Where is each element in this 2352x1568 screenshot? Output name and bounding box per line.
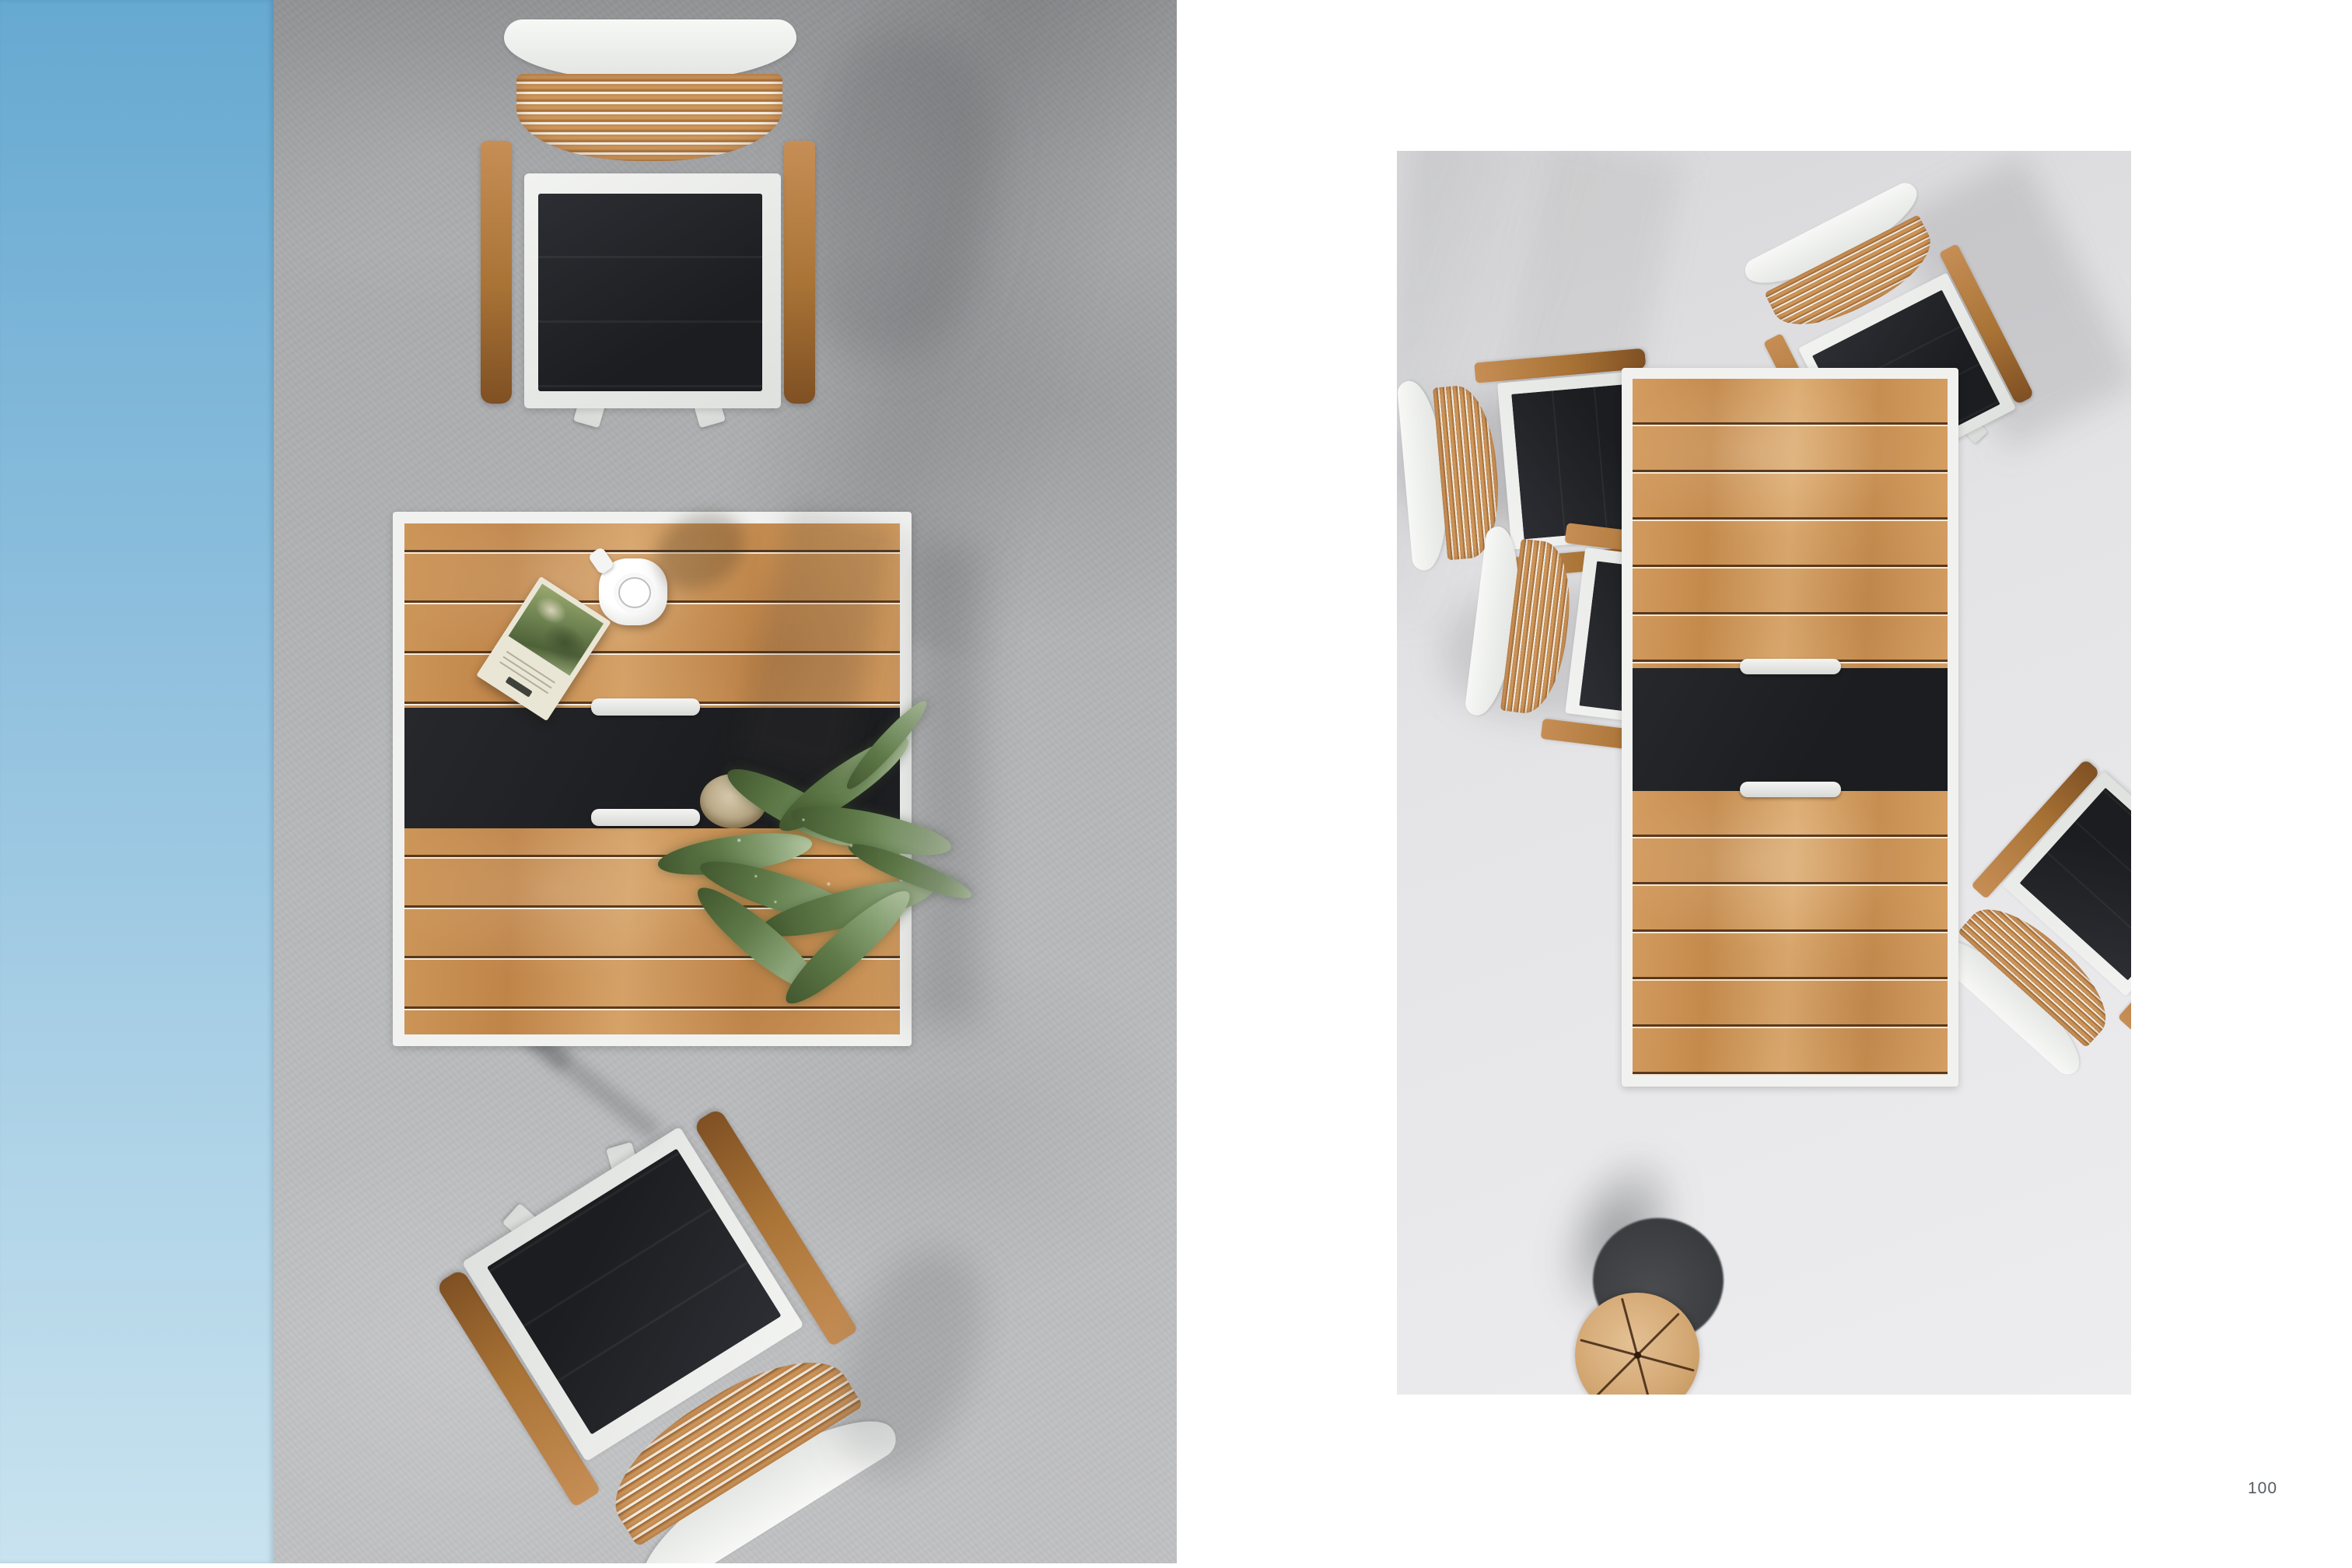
chair-back-bar bbox=[504, 19, 796, 82]
armchair-top bbox=[481, 19, 815, 412]
stool-cut-line bbox=[1621, 1298, 1654, 1395]
rect-dining-table bbox=[1622, 368, 1958, 1087]
table-top-slats-lower bbox=[1633, 791, 1948, 1076]
stool-center-dot bbox=[1634, 1352, 1641, 1359]
chair-armrest-left bbox=[481, 141, 512, 404]
table-black-center-band bbox=[1633, 668, 1948, 791]
table-handle-upper bbox=[591, 698, 700, 716]
coffee-in-cup bbox=[614, 573, 655, 612]
fern-speckles bbox=[649, 743, 929, 999]
square-dining-table bbox=[393, 512, 912, 1046]
potted-fern bbox=[649, 743, 929, 999]
table-handle-upper bbox=[1740, 659, 1841, 674]
right-page-photo bbox=[1397, 151, 2131, 1395]
blue-wall-strip bbox=[0, 0, 274, 1563]
chair-back-slats bbox=[516, 74, 782, 161]
table-top-slats-upper bbox=[1633, 379, 1948, 668]
chair-seat-sling bbox=[538, 194, 762, 391]
table-handle-lower bbox=[1740, 782, 1841, 797]
left-page-photo bbox=[0, 0, 1177, 1563]
chair-armrest-right bbox=[784, 141, 815, 404]
coffee-cup-saucer bbox=[599, 558, 667, 625]
page-number: 100 bbox=[2248, 1479, 2277, 1498]
